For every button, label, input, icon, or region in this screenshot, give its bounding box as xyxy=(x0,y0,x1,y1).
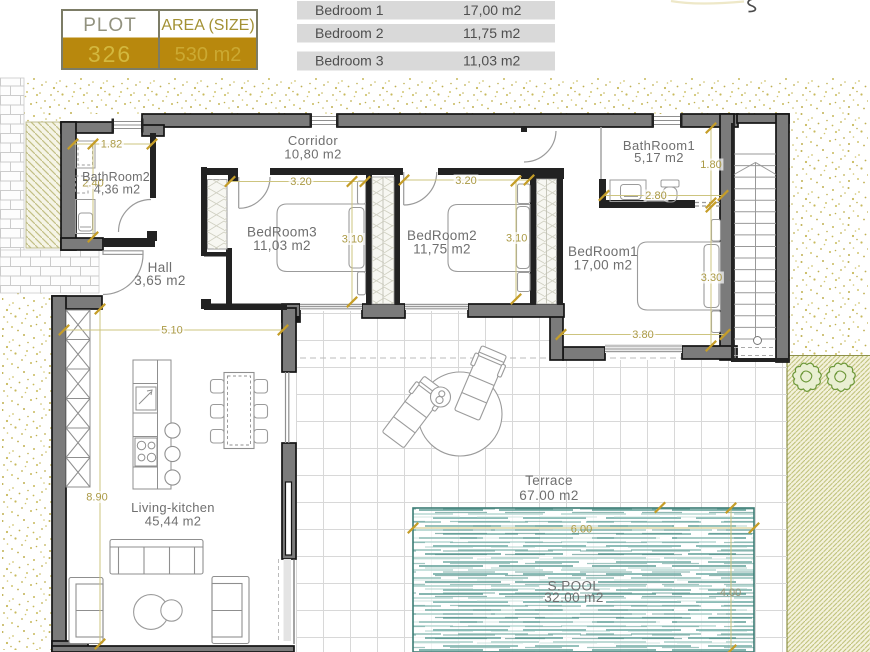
svg-text:Bedroom 3: Bedroom 3 xyxy=(315,53,384,69)
svg-text:17,00 m2: 17,00 m2 xyxy=(463,2,522,18)
svg-text:3.80: 3.80 xyxy=(632,329,653,341)
svg-text:10,80 m2: 10,80 m2 xyxy=(284,147,341,162)
svg-text:Terrace: Terrace xyxy=(525,473,573,488)
svg-text:4,36 m2: 4,36 m2 xyxy=(94,183,141,197)
svg-text:8.90: 8.90 xyxy=(86,492,107,504)
svg-text:Bedroom 2: Bedroom 2 xyxy=(315,25,384,41)
svg-text:3.30: 3.30 xyxy=(701,272,722,284)
svg-text:45,44 m2: 45,44 m2 xyxy=(145,514,202,529)
svg-text:5,17 m2: 5,17 m2 xyxy=(634,150,684,165)
svg-text:1.80: 1.80 xyxy=(700,159,721,171)
svg-text:1.82: 1.82 xyxy=(101,139,122,151)
svg-text:5.10: 5.10 xyxy=(161,325,182,337)
svg-text:530 m2: 530 m2 xyxy=(175,44,242,66)
svg-text:3.10: 3.10 xyxy=(342,234,363,246)
svg-text:2.80: 2.80 xyxy=(645,190,666,202)
svg-text:PLOT: PLOT xyxy=(83,15,137,36)
svg-text:3,65 m2: 3,65 m2 xyxy=(134,273,186,288)
svg-text:17,00 m2: 17,00 m2 xyxy=(574,258,633,273)
svg-text:67.00 m2: 67.00 m2 xyxy=(519,488,579,503)
svg-text:3.20: 3.20 xyxy=(455,175,476,187)
svg-text:326: 326 xyxy=(88,41,132,67)
svg-text:Bedroom 1: Bedroom 1 xyxy=(315,2,384,18)
svg-text:11,03 m2: 11,03 m2 xyxy=(463,53,521,69)
svg-text:4.00: 4.00 xyxy=(720,587,741,599)
svg-text:11,75 m2: 11,75 m2 xyxy=(463,25,521,41)
svg-text:AREA (SIZE): AREA (SIZE) xyxy=(161,17,254,34)
svg-text:3.10: 3.10 xyxy=(506,233,527,245)
svg-text:6.00: 6.00 xyxy=(571,524,592,536)
svg-text:3.20: 3.20 xyxy=(290,176,311,188)
svg-text:11,03 m2: 11,03 m2 xyxy=(253,238,311,253)
svg-text:11,75 m2: 11,75 m2 xyxy=(413,242,471,257)
svg-text:32.00 m2: 32.00 m2 xyxy=(544,590,604,605)
